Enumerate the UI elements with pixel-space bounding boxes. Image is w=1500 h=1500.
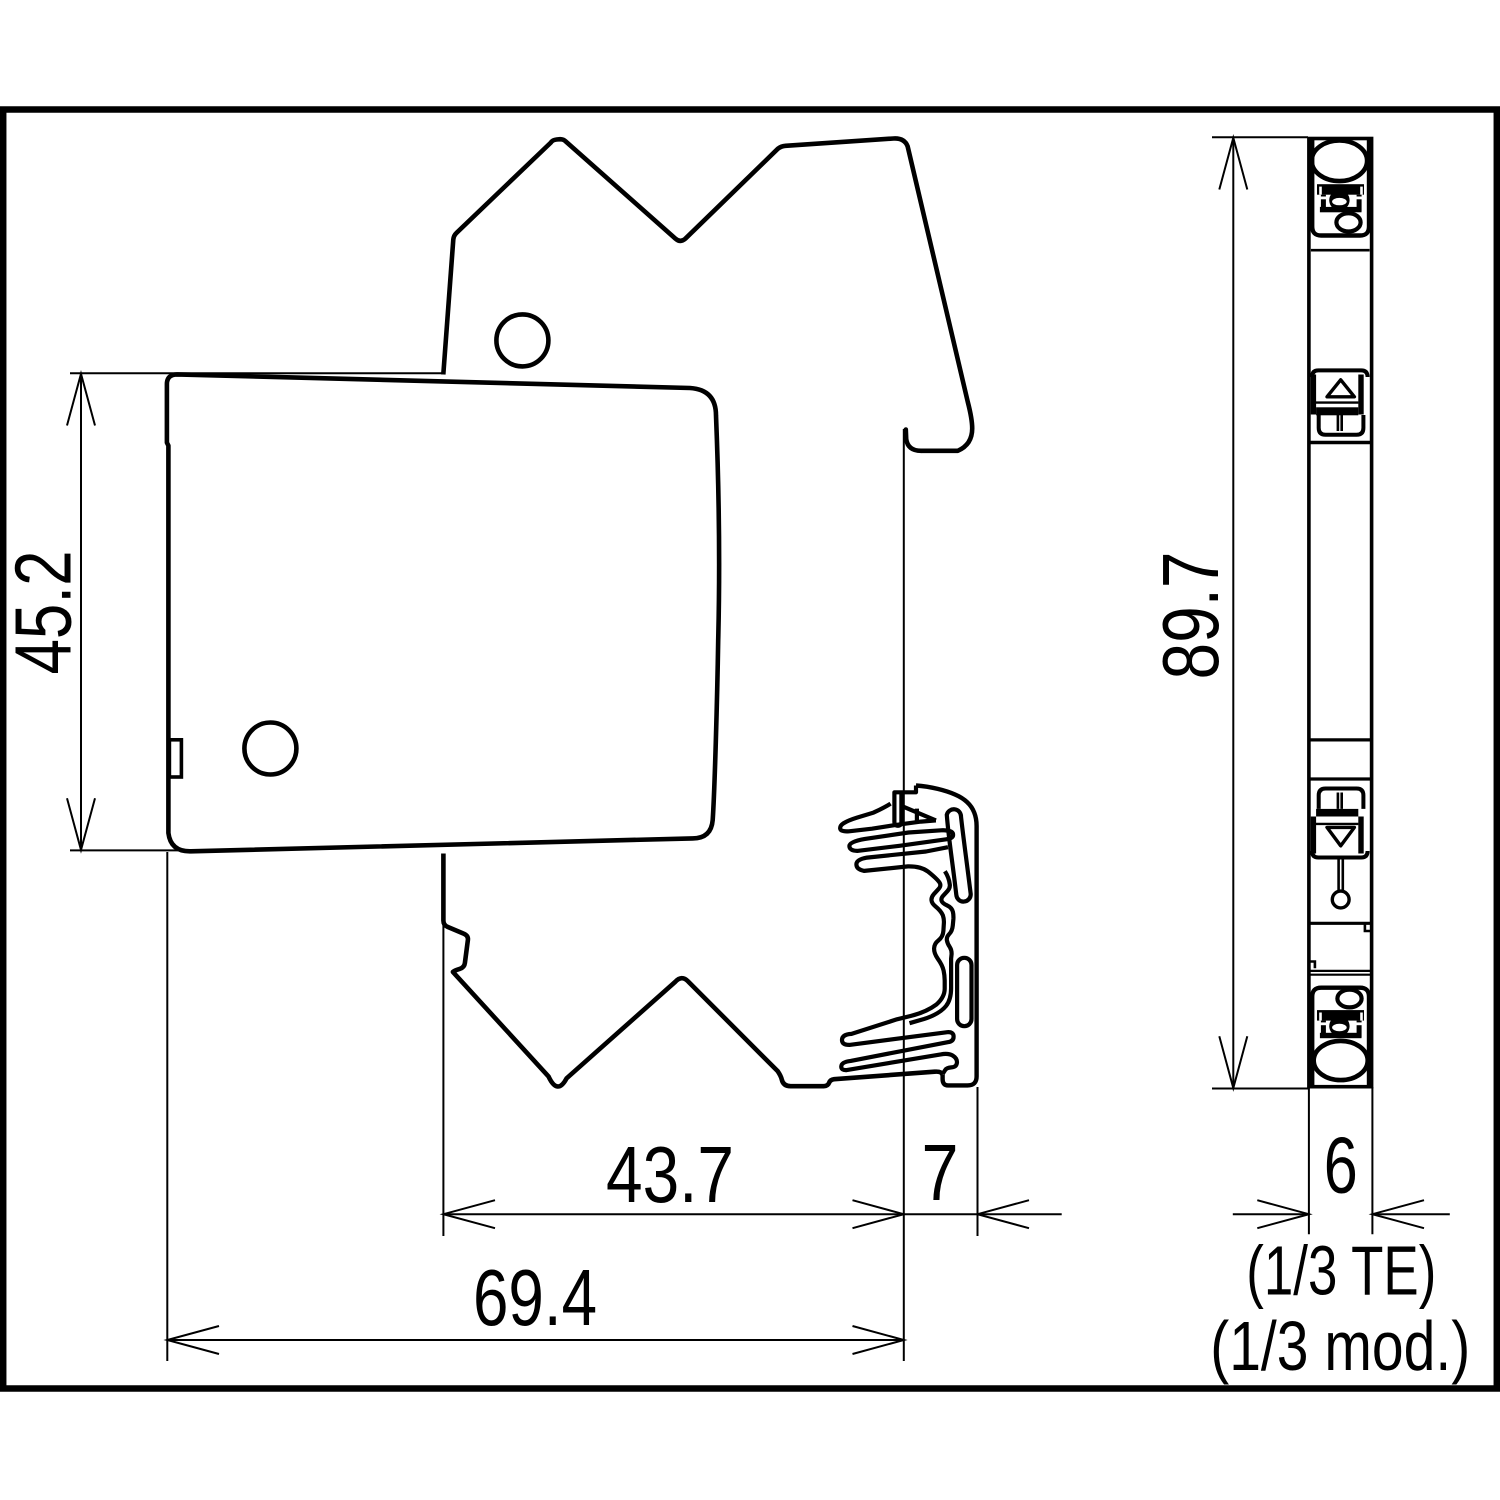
svg-text:7: 7 (922, 1128, 959, 1217)
svg-text:89.7: 89.7 (1146, 552, 1235, 680)
svg-text:45.2: 45.2 (0, 551, 88, 675)
svg-text:6: 6 (1324, 1121, 1358, 1210)
svg-text:(1/3 mod.): (1/3 mod.) (1210, 1307, 1470, 1385)
svg-text:43.7: 43.7 (606, 1130, 734, 1219)
svg-text:69.4: 69.4 (473, 1253, 597, 1342)
svg-text:(1/3 TE): (1/3 TE) (1246, 1231, 1436, 1309)
